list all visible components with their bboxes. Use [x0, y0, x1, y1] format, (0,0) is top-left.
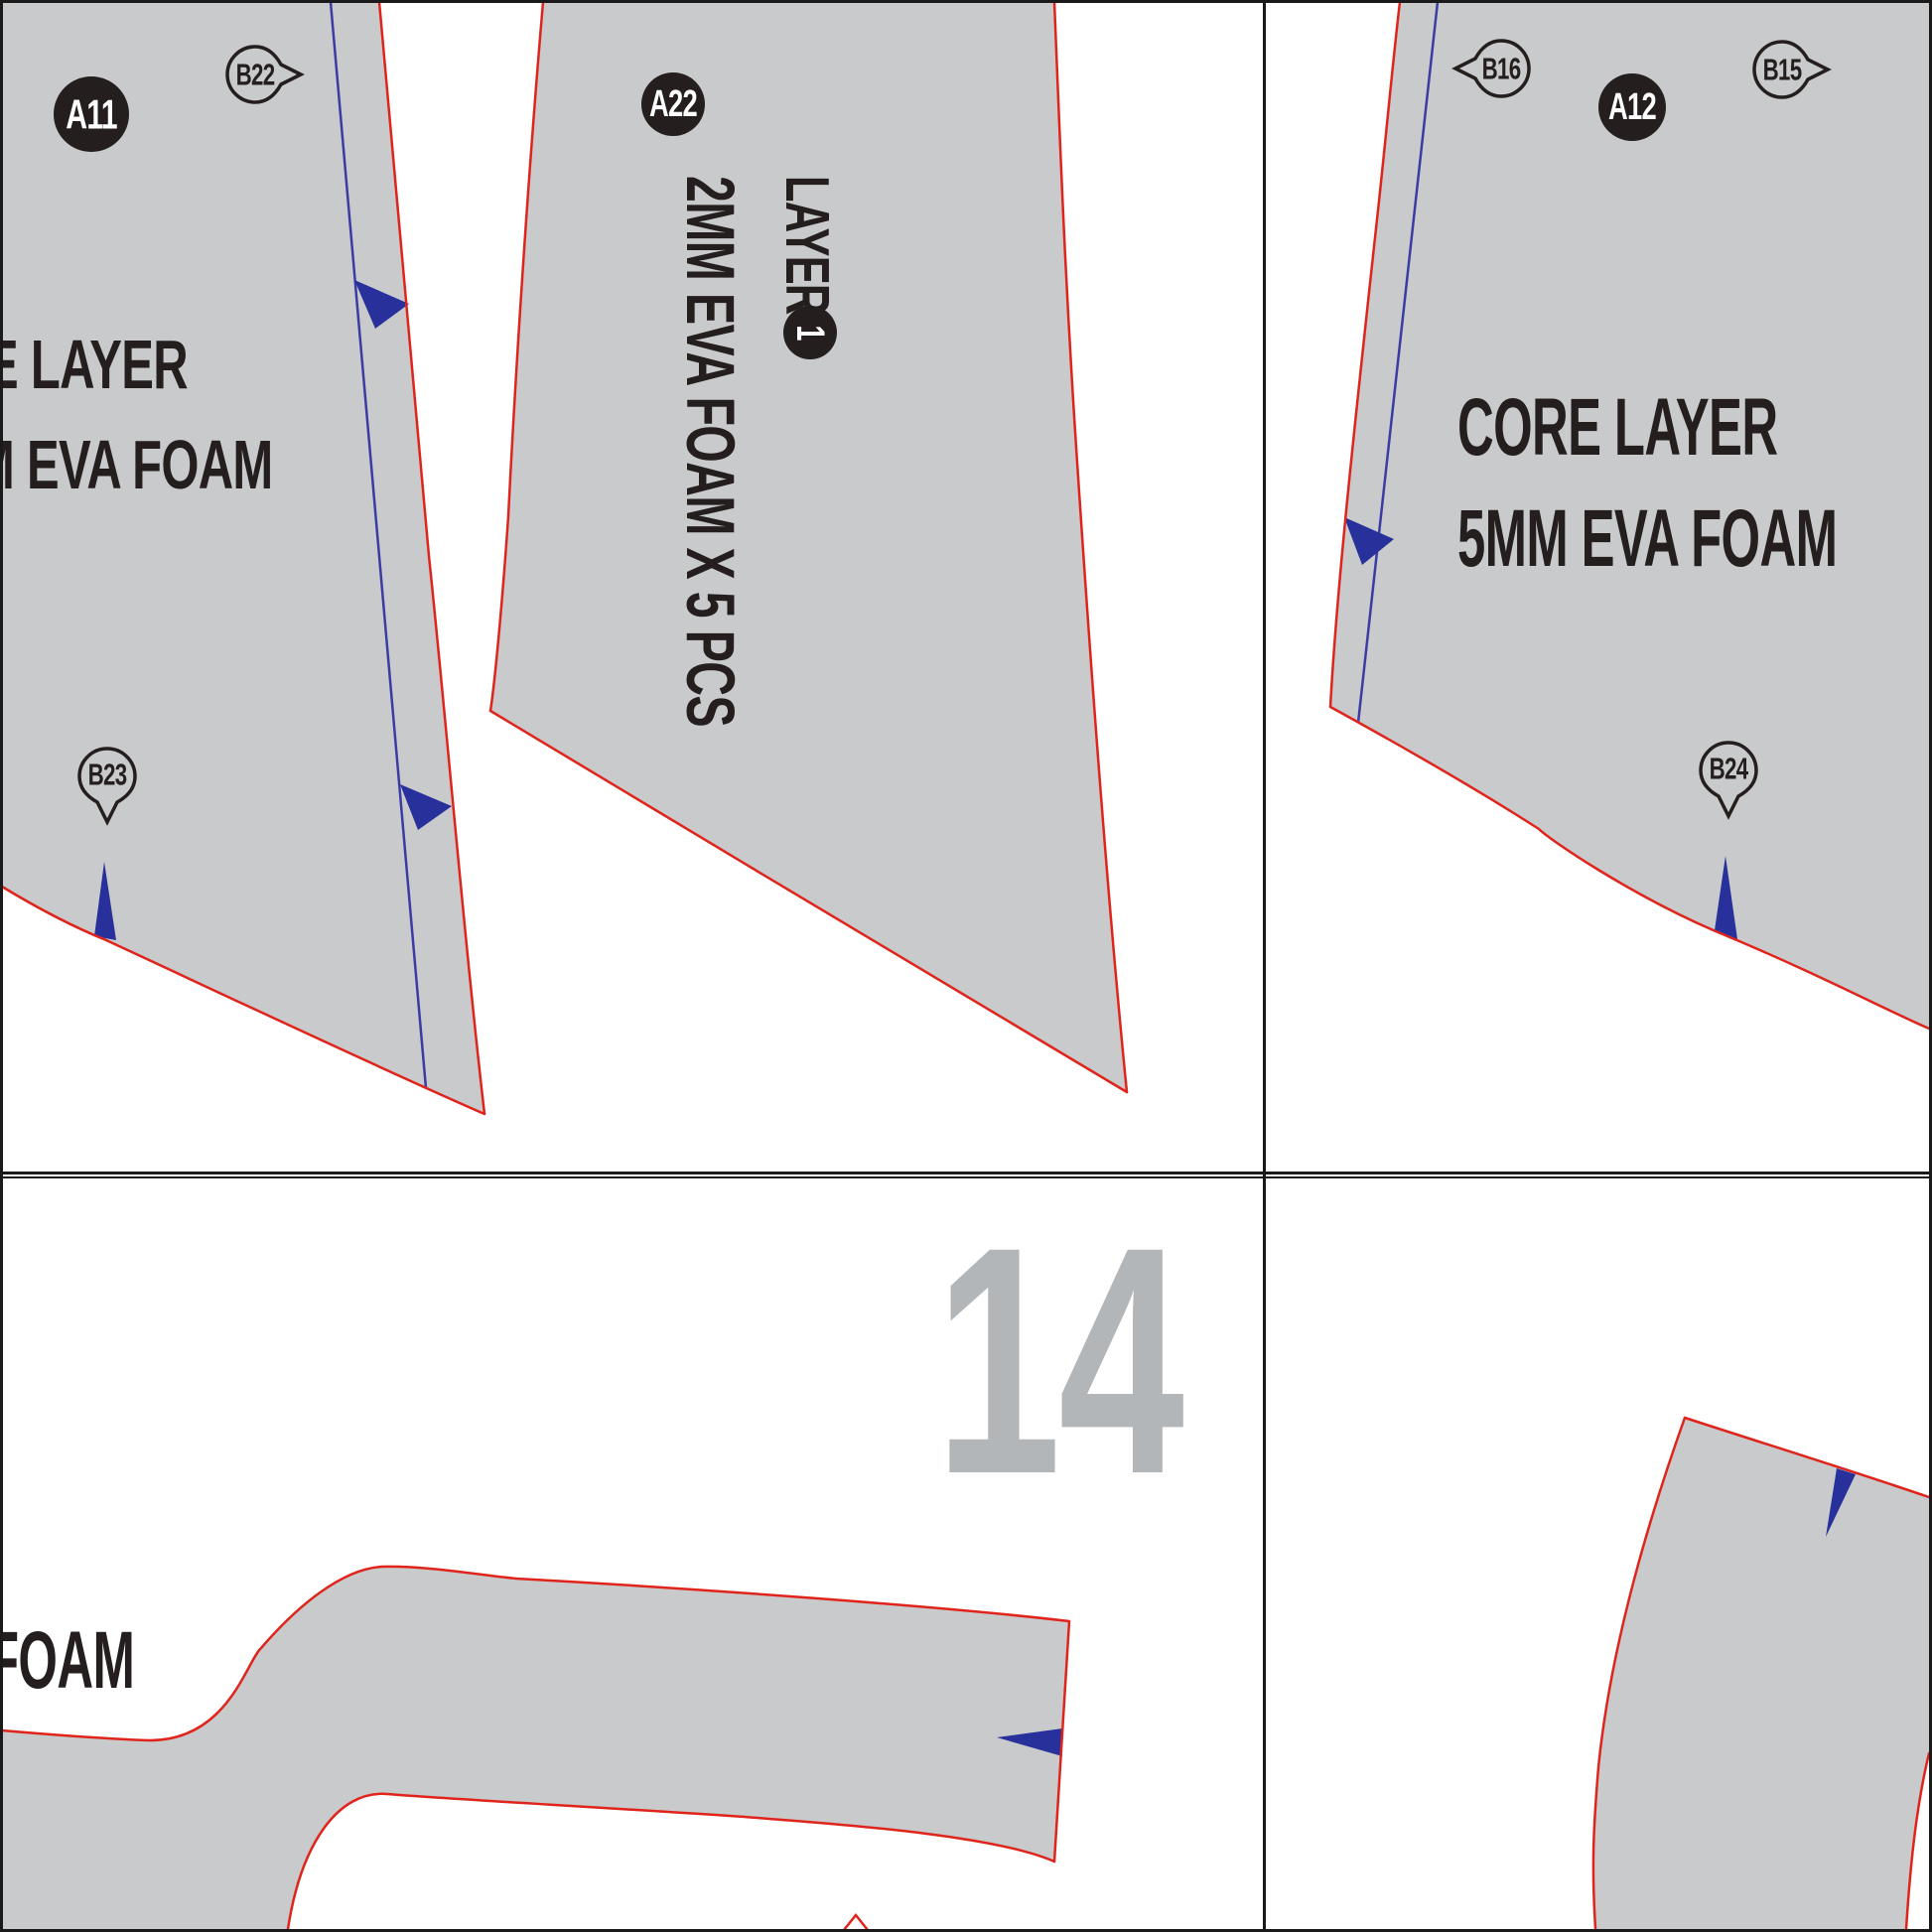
- b15-pin-label: B15: [1763, 53, 1802, 86]
- page-divider-vertical: [1263, 0, 1266, 1932]
- a22-layer-text: LAYER: [772, 176, 840, 315]
- a22-layer-number: 1: [788, 325, 833, 341]
- pattern-canvas: A11 A22 A12 B22 B23 B16 B15 B24 E LAYER …: [0, 0, 1932, 1932]
- page-bottom-red-tick: [844, 1915, 868, 1930]
- piece-a11-fill: [2, 2, 484, 1114]
- piece-a22-fill: [490, 2, 1127, 1092]
- a12-id-label: A12: [1608, 86, 1656, 128]
- strip-text-fragment: FOAM: [0, 1615, 134, 1706]
- page-divider-horizontal-upper: [0, 1172, 1932, 1174]
- a22-material-text: 2MM EVA FOAM X 5 PCS: [672, 176, 750, 727]
- a22-id-label: A22: [649, 83, 697, 125]
- page-divider-horizontal-lower: [0, 1176, 1932, 1178]
- piece-strip-fill: [2, 1567, 1069, 1929]
- b23-pin-label: B23: [88, 758, 127, 791]
- b22-pin-label: B22: [236, 58, 275, 91]
- a11-text-line2: M EVA FOAM: [0, 425, 273, 503]
- a11-text-line1: E LAYER: [0, 325, 188, 403]
- pattern-sheet: A11 A22 A12 B22 B23 B16 B15 B24 E LAYER …: [0, 0, 1932, 1932]
- piece-bottom-right-fill: [1593, 1418, 1929, 1929]
- b24-pin-label: B24: [1710, 752, 1748, 785]
- a11-id-label: A11: [66, 90, 117, 137]
- page-border-left: [0, 0, 3, 1932]
- b16-pin-label: B16: [1482, 52, 1521, 85]
- page-border-top: [0, 0, 1932, 3]
- a12-text-line2: 5MM EVA FOAM: [1457, 493, 1837, 584]
- a12-text-line1: CORE LAYER: [1457, 382, 1777, 473]
- page-number: 14: [935, 1179, 1185, 1542]
